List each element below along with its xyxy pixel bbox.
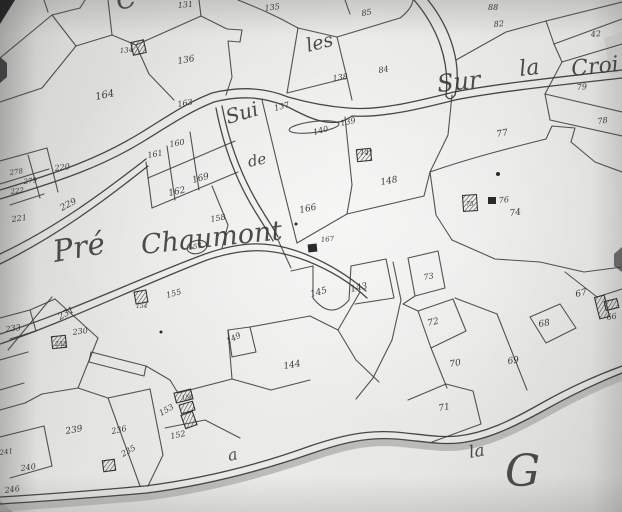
- parcel-boundary-line: [546, 126, 575, 142]
- parcel-number: 67: [575, 288, 589, 300]
- parcel-boundary-line: [0, 403, 25, 410]
- parcel-number: 154: [136, 303, 148, 310]
- parcel-boundary-line: [355, 259, 394, 304]
- ink-dot: [496, 172, 500, 176]
- parcel-boundary-line: [136, 16, 201, 45]
- parcel-number: 76: [498, 195, 509, 205]
- parcel-boundary-line: [80, 0, 85, 8]
- parcel-boundary-line: [0, 383, 24, 390]
- place-name: la: [518, 55, 541, 82]
- parcel-boundary-line: [76, 35, 112, 46]
- parcel-number: 231: [56, 305, 77, 323]
- parcel-number: 230: [71, 326, 88, 337]
- parcel-number: 72: [427, 317, 441, 329]
- parcel-number: 229: [58, 197, 79, 214]
- road-line: [0, 78, 622, 199]
- parcel-number: 75: [466, 201, 474, 208]
- parcel-boundary-line: [452, 240, 622, 272]
- parcel-number: 236: [110, 424, 128, 436]
- parcel-boundary-line: [351, 259, 386, 266]
- parcel-number: 233: [4, 323, 21, 334]
- parcel-boundary-line: [546, 21, 554, 44]
- building-solid: [488, 197, 496, 204]
- parcel-boundary-line: [546, 2, 622, 21]
- building-hatched: [102, 459, 115, 472]
- road-line: [0, 70, 622, 190]
- place-name: les: [304, 29, 336, 57]
- parcel-number: 279: [22, 176, 38, 186]
- parcel-boundary-line: [52, 8, 80, 15]
- parcel-boundary-line: [0, 426, 44, 437]
- photo-edge-artifact: [0, 57, 7, 83]
- parcel-number: 149: [225, 331, 243, 346]
- parcel-boundary-line: [0, 299, 55, 318]
- parcel-number: 278: [8, 167, 24, 177]
- parcel-boundary-line: [347, 78, 352, 100]
- parcel-boundary-line: [89, 352, 146, 376]
- parcel-number: 222: [9, 186, 25, 196]
- parcel-number: 85: [361, 7, 373, 18]
- photo-edge-artifact: [0, 0, 15, 24]
- map-svg: 1311351341361641631371391408882428584138…: [0, 0, 622, 512]
- parcel-number: 161: [147, 148, 164, 160]
- parcel-number: 163: [177, 97, 194, 109]
- building-solid: [308, 244, 318, 253]
- parcel-boundary-line: [287, 28, 298, 93]
- place-name: de: [246, 149, 268, 170]
- parcel-number: 131: [177, 0, 193, 10]
- parcel-number: 167: [320, 235, 335, 244]
- parcel-boundary-line: [108, 398, 140, 486]
- parcel-number: 140: [312, 124, 329, 137]
- parcel-boundary-line: [392, 262, 401, 340]
- parcel-number: 68: [538, 318, 551, 330]
- parcel-boundary-line: [530, 304, 576, 343]
- place-name: Chaumont: [139, 215, 283, 261]
- parcel-boundary-line: [52, 15, 76, 46]
- parcel-boundary-line: [25, 394, 42, 403]
- parcel-number: 144: [283, 359, 302, 372]
- parcel-boundary-line: [424, 172, 430, 196]
- parcel-boundary-line: [146, 366, 178, 393]
- parcel-boundary-line: [345, 0, 350, 14]
- parcel-boundary-line: [199, 0, 201, 16]
- parcel-number: 152: [170, 429, 187, 441]
- parcel-number: 232: [54, 341, 67, 348]
- parcel-number: 42: [589, 29, 601, 39]
- parcel-number: 73: [423, 271, 435, 282]
- parcel-number: 88: [488, 3, 498, 12]
- parcel-number: 148: [380, 175, 399, 188]
- cadastral-map-photo: 1311351341361641631371391408882428584138…: [0, 0, 622, 512]
- parcel-boundary-line: [345, 117, 352, 214]
- place-name: G: [505, 446, 540, 497]
- ink-dot: [160, 331, 163, 334]
- parcel-number: 241: [0, 447, 14, 457]
- parcel-boundary-line: [430, 172, 452, 240]
- ink-dot: [295, 223, 298, 226]
- parcel-boundary-line: [347, 196, 424, 214]
- place-name: C: [113, 0, 139, 17]
- parcel-number: 145: [309, 286, 328, 300]
- parcel-number: 166: [299, 203, 318, 216]
- parcel-number: 143: [350, 282, 369, 295]
- parcel-boundary-line: [0, 352, 28, 360]
- parcel-number: 71: [438, 402, 451, 414]
- parcel-boundary-line: [338, 330, 379, 382]
- parcel-number: 77: [496, 128, 509, 140]
- parcel-number: 135: [264, 2, 280, 13]
- parcel-number: 169: [191, 172, 210, 186]
- parcel-number: 220: [53, 162, 70, 173]
- place-name: a: [226, 444, 239, 465]
- parcel-boundary-line: [356, 340, 392, 399]
- parcel-boundary-line: [108, 389, 150, 398]
- parcel-boundary-line: [418, 299, 466, 348]
- parcel-boundary-line: [571, 142, 622, 172]
- parcel-boundary-line: [403, 296, 418, 311]
- parcel-number: 150: [181, 393, 194, 402]
- parcel-boundary-line: [430, 139, 546, 172]
- parcel-boundary-line: [291, 266, 313, 271]
- parcel-number: 82: [493, 19, 504, 29]
- parcel-number: 70: [449, 358, 462, 370]
- parcel-boundary-line: [0, 148, 47, 161]
- parcel-number: 79: [576, 82, 587, 92]
- parcel-number: 162: [168, 186, 187, 199]
- parcel-number: 74: [509, 207, 522, 219]
- parcel-boundary-line: [337, 0, 413, 37]
- parcel-number: 84: [378, 64, 390, 75]
- parcel-boundary-line: [148, 389, 163, 486]
- parcel-boundary-line: [545, 94, 622, 136]
- parcel-number: 164: [94, 88, 115, 103]
- parcel-boundary-line: [78, 388, 108, 398]
- parcel-boundary-line: [0, 15, 52, 58]
- parcel-number: 141: [360, 149, 373, 157]
- parcel-number: 235: [119, 443, 138, 459]
- parcel-boundary-line: [545, 94, 622, 112]
- parcel-number: 134: [119, 46, 133, 55]
- parcel-boundary-line: [455, 298, 497, 314]
- parcel-boundary-line: [10, 194, 44, 205]
- parcel-boundary-line: [250, 316, 310, 327]
- building-hatched: [181, 411, 197, 428]
- parcel-boundary-line: [232, 379, 310, 390]
- parcel-number: 221: [10, 213, 27, 224]
- parcel-number: 153: [158, 402, 176, 417]
- parcel-number: 246: [3, 484, 20, 495]
- place-name: Sur: [436, 65, 484, 98]
- parcel-boundary-line: [431, 348, 447, 388]
- parcel-boundary-line: [44, 426, 52, 466]
- place-name: Sui: [223, 97, 261, 129]
- parcel-number: 78: [597, 116, 608, 126]
- place-name: Croi: [570, 52, 620, 82]
- parcel-number: 139: [340, 116, 357, 128]
- parcel-number: 66: [606, 312, 617, 322]
- parcel-boundary-line: [146, 162, 152, 208]
- parcel-number: 136: [177, 54, 196, 67]
- parcel-number: 69: [507, 355, 520, 367]
- parcel-number: 160: [169, 137, 186, 149]
- parcel-boundary-line: [0, 46, 76, 102]
- parcel-number: 155: [165, 287, 182, 300]
- parcel-boundary-line: [430, 95, 452, 172]
- parcel-boundary-line: [42, 388, 78, 394]
- parcel-number: 138: [332, 72, 348, 83]
- parcel-boundary-line: [201, 16, 242, 95]
- parcel-boundary-line: [497, 314, 527, 390]
- parcel-number: 239: [64, 424, 84, 437]
- parcel-boundary-line: [148, 141, 235, 178]
- place-name: Pré: [49, 226, 108, 270]
- parcel-boundary-line: [108, 0, 112, 35]
- building-hatched: [134, 290, 148, 304]
- parcel-boundary-line: [44, 0, 48, 12]
- building-hatched: [604, 299, 619, 311]
